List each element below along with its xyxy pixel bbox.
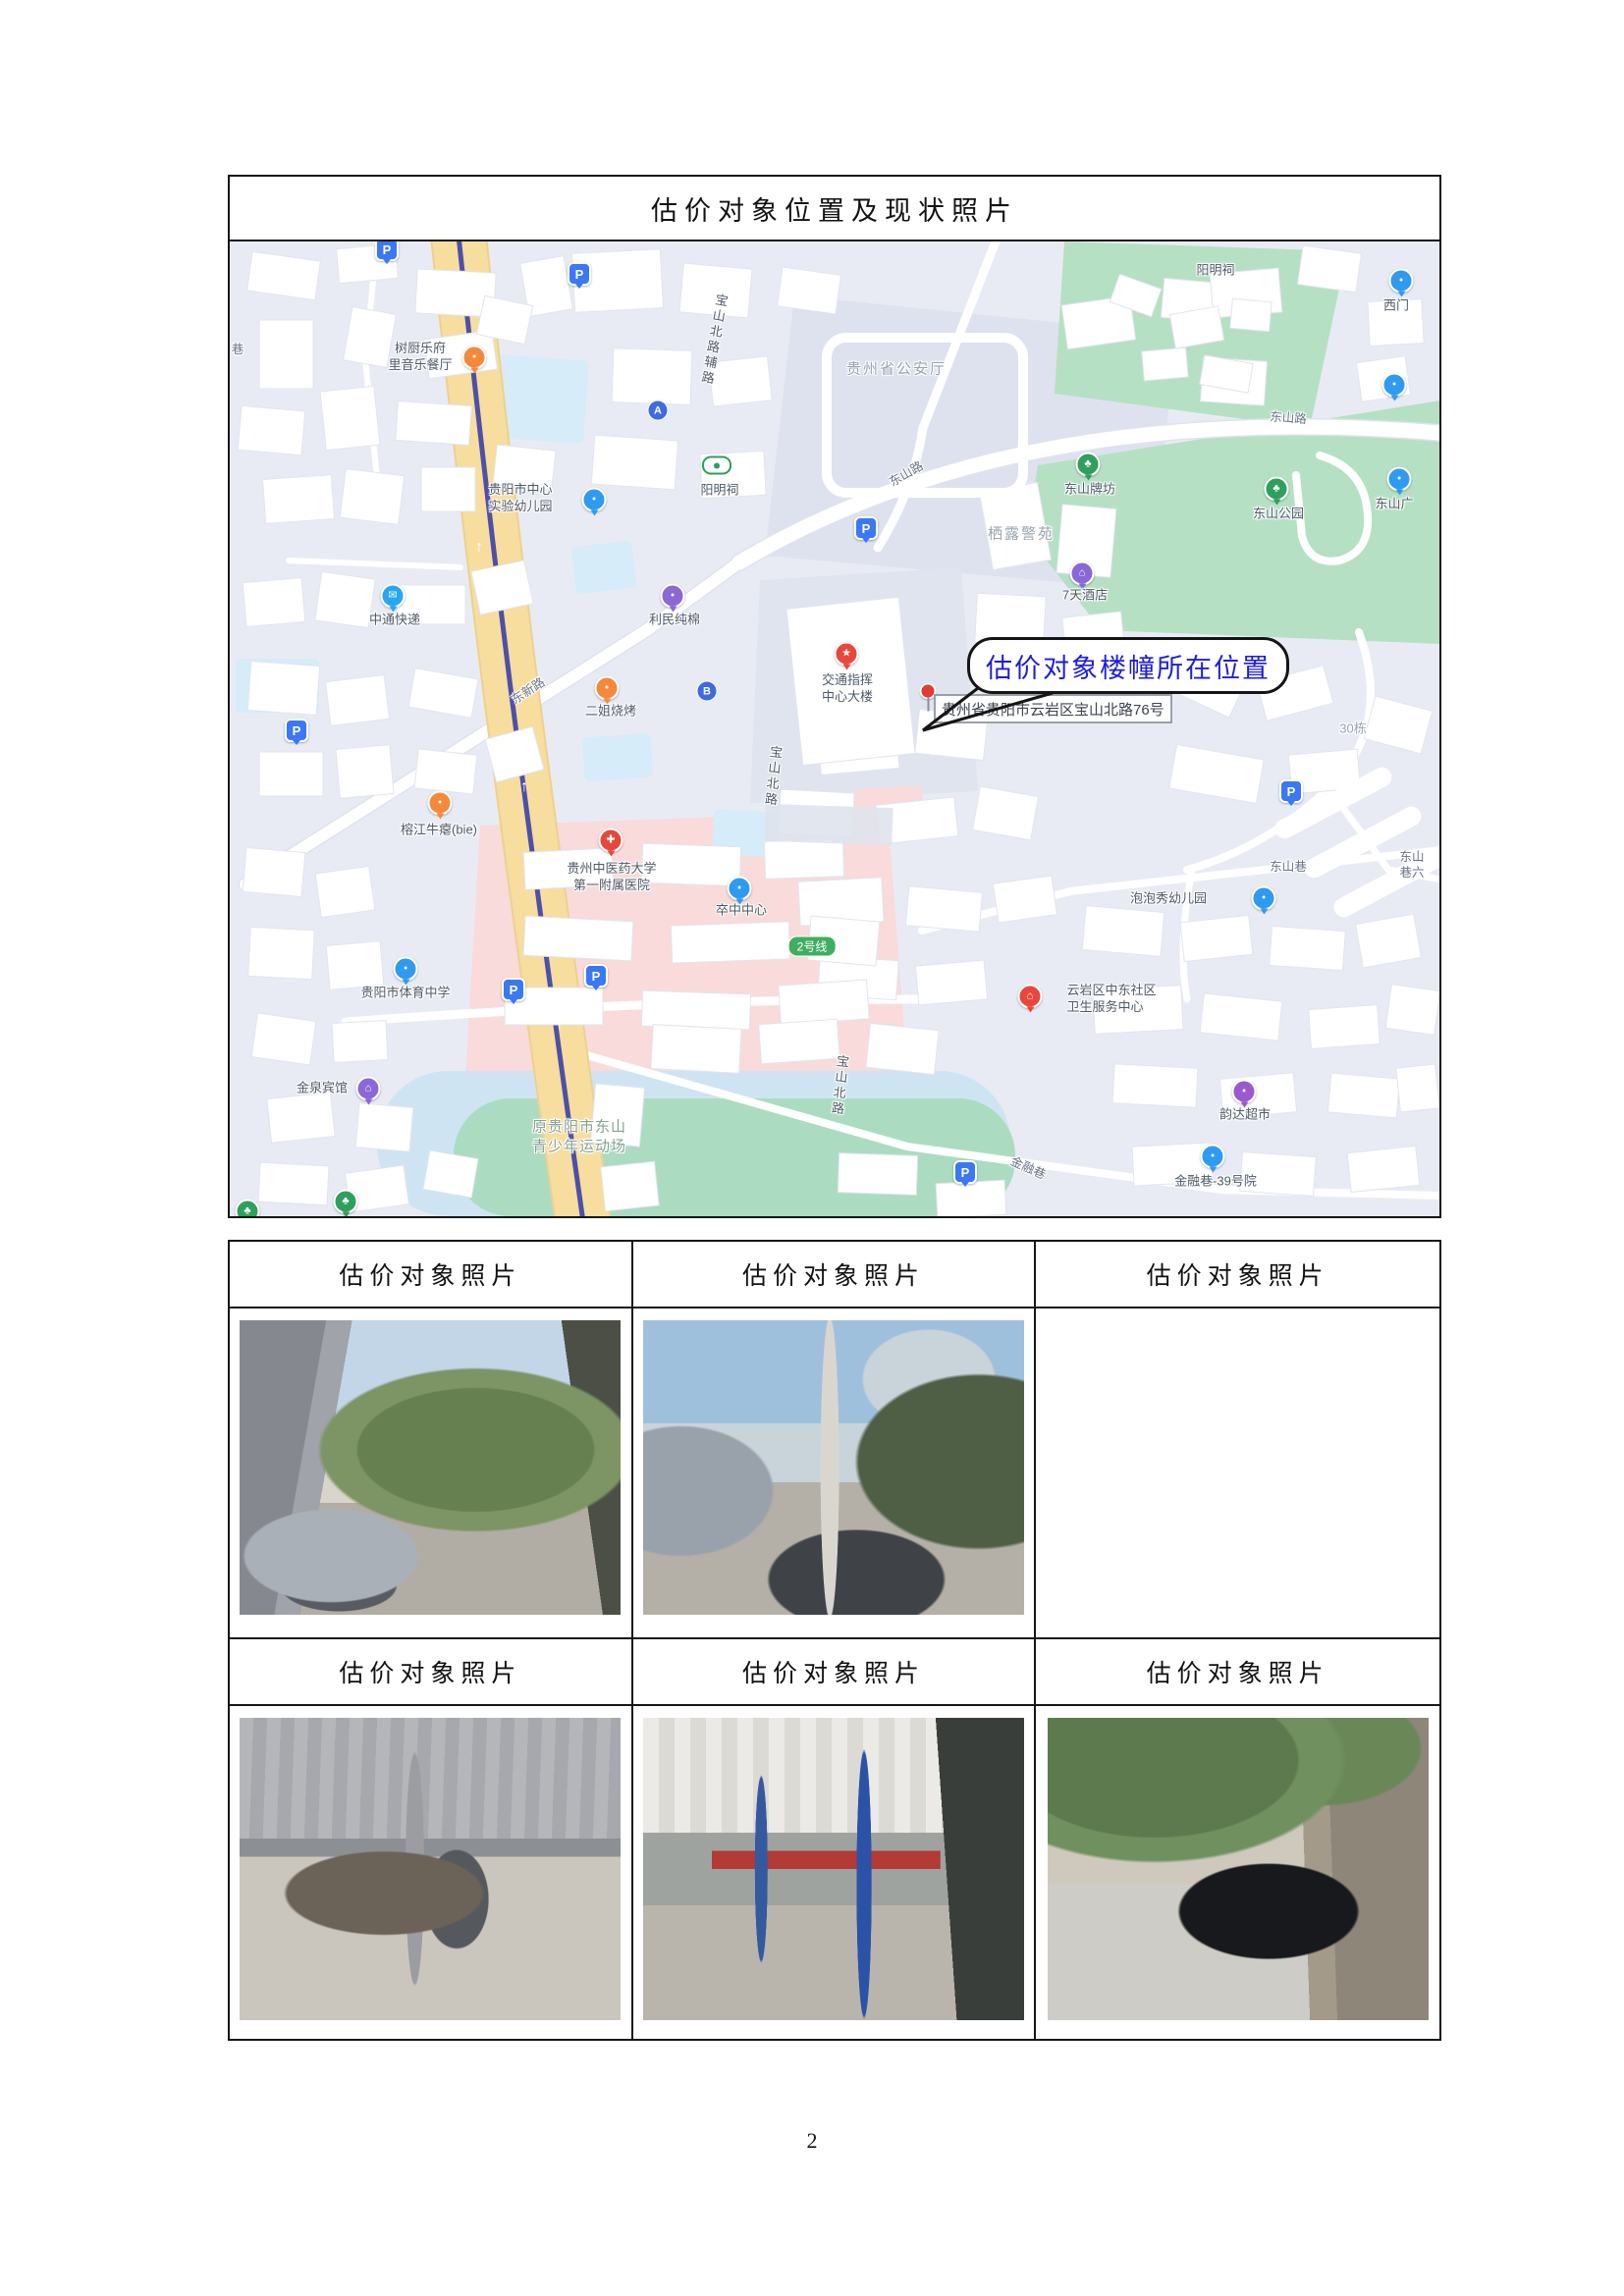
photo-cell <box>1036 1308 1439 1639</box>
photo-header: 估价对象照片 <box>1036 1639 1439 1706</box>
photo-cell <box>230 1308 633 1639</box>
photo-entrance-suv <box>1048 1718 1429 2020</box>
photo-header: 估价对象照片 <box>230 1639 633 1706</box>
photo-cell <box>633 1706 1037 2039</box>
page-number: 2 <box>0 2128 1624 2154</box>
location-map-table: 估价对象位置及现状照片 <box>228 175 1441 1218</box>
photo-header: 估价对象照片 <box>633 1242 1037 1308</box>
photo-garage-interior <box>240 1718 621 2020</box>
subject-location-callout: 估价对象楼幢所在位置 <box>967 637 1289 694</box>
photo-header: 估价对象照片 <box>633 1639 1037 1706</box>
location-map: ↑↑↑ 巷树厨乐府 里音乐餐厅贵阳市中心 实验幼儿园中通快递利民纯棉二姐烧烤东新… <box>230 241 1439 1216</box>
photo-header: 估价对象照片 <box>230 1242 633 1308</box>
photo-cell <box>633 1308 1037 1639</box>
map-table-title: 估价对象位置及现状照片 <box>230 177 1439 241</box>
photo-alley-with-car <box>240 1320 621 1615</box>
document-page: 估价对象位置及现状照片 <box>0 0 1624 2296</box>
photo-cell <box>230 1706 633 2039</box>
photo-table: 估价对象照片 估价对象照片 估价对象照片 估价对象照片 估价对象照片 估价对象照… <box>228 1240 1441 2041</box>
photo-header: 估价对象照片 <box>1036 1242 1439 1308</box>
photo-cell <box>1036 1706 1439 2039</box>
photo-repair-shop <box>643 1718 1024 2020</box>
photo-street-pole <box>643 1320 1024 1615</box>
callout-tail <box>230 241 1439 1216</box>
photo-carport-yard <box>1048 1320 1429 1615</box>
